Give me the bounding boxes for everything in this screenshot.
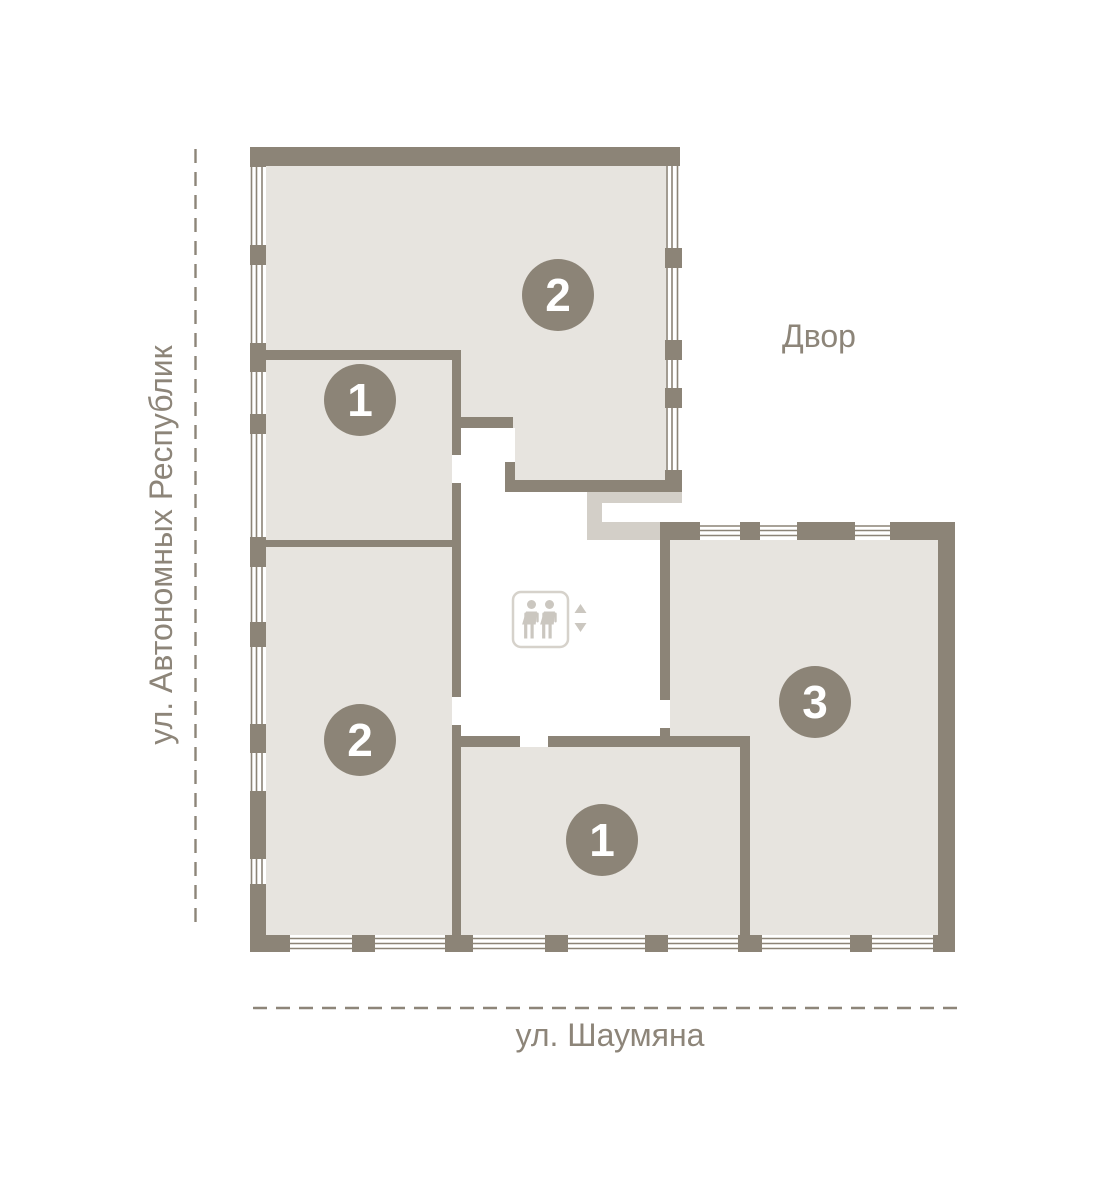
apartment-badge-right[interactable]: 3: [779, 666, 851, 738]
svg-text:1: 1: [347, 374, 373, 426]
door-gap: [504, 428, 514, 462]
floor-plan: ул. Автономных Республик ул. Шаумяна Дво…: [0, 0, 1106, 1200]
triangle-up-icon: [575, 604, 587, 613]
svg-text:2: 2: [347, 714, 373, 766]
apartment-badge-top[interactable]: 2: [522, 259, 594, 331]
apartment-badge-upper-left[interactable]: 1: [324, 364, 396, 436]
street-label-bottom: ул. Шаумяна: [516, 1017, 705, 1053]
elevator-icon: [513, 592, 587, 647]
svg-text:3: 3: [802, 676, 828, 728]
apartment-badge-bottom-middle[interactable]: 1: [566, 804, 638, 876]
triangle-down-icon: [575, 623, 587, 632]
street-label-left: ул. Автономных Республик: [143, 344, 179, 744]
courtyard-label: Двор: [782, 318, 856, 354]
apartment-badge-lower-left[interactable]: 2: [324, 704, 396, 776]
svg-text:2: 2: [545, 269, 571, 321]
svg-text:1: 1: [589, 814, 615, 866]
